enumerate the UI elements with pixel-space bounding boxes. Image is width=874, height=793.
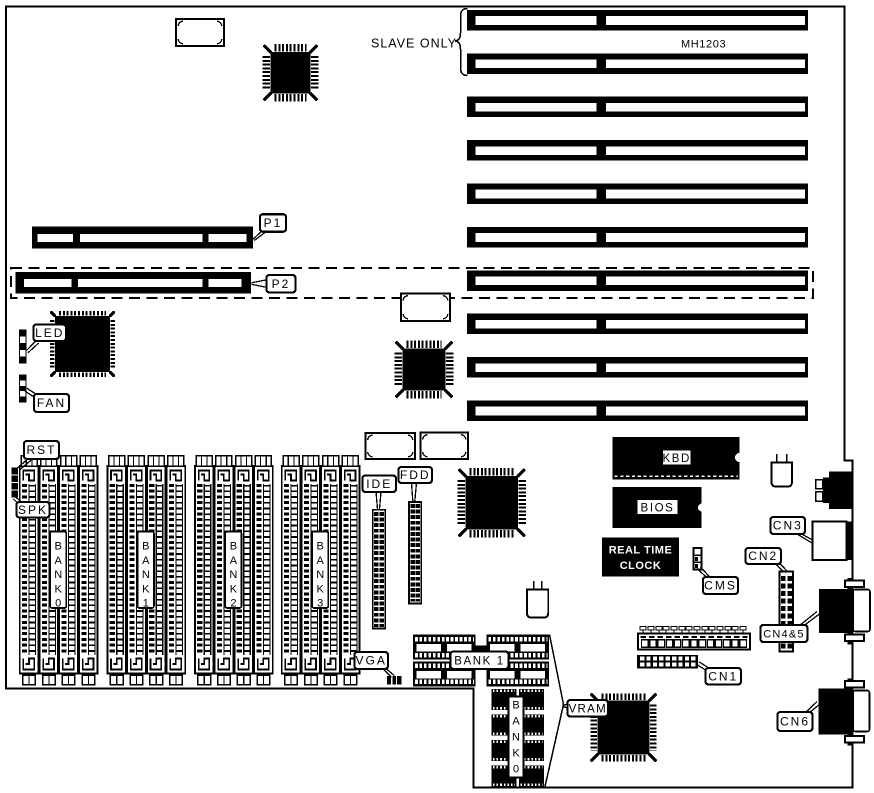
svg-text:N: N [142,569,150,581]
svg-text:FAN: FAN [37,396,66,410]
svg-text:BANK 1: BANK 1 [454,656,505,668]
svg-text:FDD: FDD [400,468,431,482]
svg-text:BIOS: BIOS [641,502,675,514]
svg-text:K: K [317,583,325,595]
svg-text:B: B [142,541,149,553]
svg-text:P2: P2 [272,277,291,291]
svg-text:CLOCK: CLOCK [620,560,662,572]
svg-text:VRAM: VRAM [569,704,607,716]
svg-text:N: N [229,569,237,581]
svg-text:K: K [55,583,63,595]
svg-text:CN1: CN1 [708,670,738,684]
svg-text:N: N [316,569,324,581]
svg-text:2: 2 [230,598,236,610]
svg-text:P1: P1 [264,216,283,230]
svg-text:B: B [55,541,62,553]
svg-text:LED: LED [35,326,64,340]
svg-text:0: 0 [55,598,61,610]
svg-text:A: A [512,716,520,728]
svg-text:3: 3 [317,598,323,610]
svg-text:B: B [512,700,519,712]
svg-text:IDE: IDE [366,477,392,491]
svg-text:A: A [142,555,150,567]
svg-text:CN4&5: CN4&5 [763,629,804,641]
svg-text:SPK: SPK [18,503,48,517]
svg-text:KBD: KBD [662,453,690,465]
svg-text:N: N [54,569,62,581]
svg-text:CN3: CN3 [773,519,803,533]
svg-text:K: K [512,748,520,760]
svg-text:VGA: VGA [356,654,387,668]
svg-text:MH1203: MH1203 [681,39,726,51]
svg-text:CMS: CMS [704,579,737,593]
svg-text:B: B [230,541,237,553]
svg-text:SLAVE ONLY: SLAVE ONLY [371,36,457,50]
svg-text:K: K [142,583,150,595]
svg-text:K: K [230,583,238,595]
svg-text:CN2: CN2 [748,549,778,563]
svg-text:A: A [55,555,63,567]
svg-text:0: 0 [513,764,519,776]
svg-text:N: N [512,732,520,744]
svg-text:CN6: CN6 [780,715,810,729]
svg-text:REAL TIME: REAL TIME [609,545,673,557]
svg-text:A: A [230,555,238,567]
svg-text:A: A [317,555,325,567]
svg-text:1: 1 [143,598,149,610]
svg-text:RST: RST [27,443,57,457]
svg-text:B: B [317,541,324,553]
